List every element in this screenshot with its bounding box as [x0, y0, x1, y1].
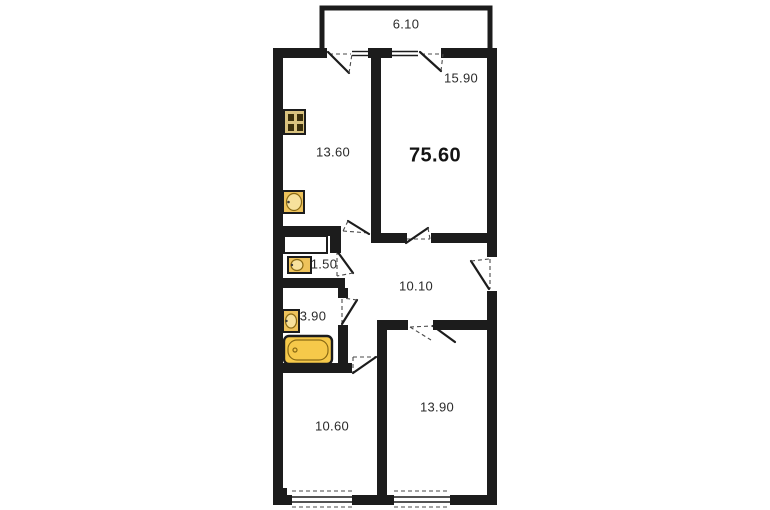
bathroom-area-label: 3.90	[300, 309, 327, 324]
balcony-area-label: 6.10	[393, 17, 420, 32]
door-bedroom-small	[353, 357, 376, 373]
total-area-label: 75.60	[409, 145, 461, 168]
bedroom-large-area-label: 13.90	[420, 400, 454, 415]
wc-sink-icon	[288, 257, 311, 273]
vent-shaft	[284, 236, 327, 253]
stove-icon	[284, 110, 305, 134]
floor-plan-canvas: 6.10 15.90 13.60 75.60 1.50 10.10 3.90 1…	[0, 0, 770, 510]
kitchen-sink-icon	[283, 191, 304, 213]
bottom-window-right	[394, 491, 450, 507]
interior-walls	[283, 58, 487, 505]
bedroom-small-area-label: 10.60	[315, 419, 349, 434]
door-living-room	[406, 228, 430, 243]
door-kitchen	[343, 221, 369, 234]
bathtub-icon	[284, 336, 332, 364]
balcony-window-left	[352, 52, 368, 56]
door-bathroom	[342, 298, 357, 324]
door-balcony-living	[420, 52, 443, 71]
hallway-area-label: 10.10	[399, 279, 433, 294]
balcony-window-right	[392, 52, 418, 56]
bottom-window-left	[292, 491, 352, 507]
door-wc	[337, 251, 353, 276]
kitchen-area-label: 13.60	[316, 145, 350, 160]
living-room-area-label: 15.90	[444, 71, 478, 86]
door-entrance	[471, 259, 490, 289]
bathroom-sink-icon	[283, 310, 299, 332]
door-balcony-kitchen	[328, 52, 352, 73]
floor-plan-drawing	[0, 0, 770, 510]
wc-area-label: 1.50	[311, 257, 338, 272]
